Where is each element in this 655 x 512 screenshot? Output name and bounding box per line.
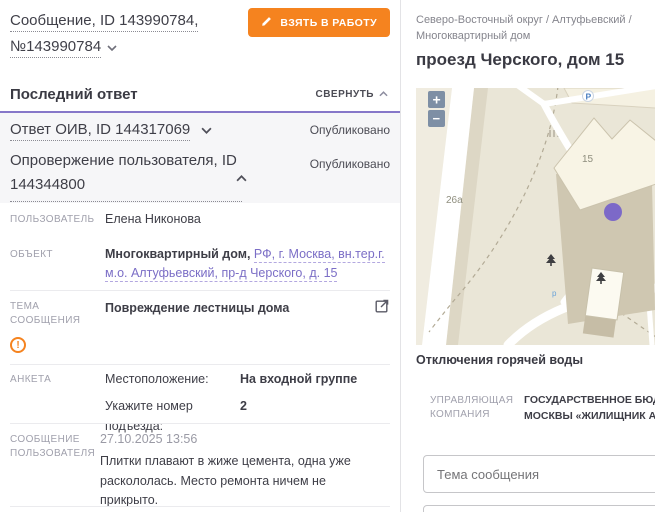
map-parking-small-icon: p [552,289,557,298]
message-title-line1[interactable]: Сообщение, ID 143990784, [10,12,198,32]
field-survey-label: АНКЕТА [10,370,105,387]
svg-text:P: P [586,91,592,101]
map-marker[interactable] [604,203,622,221]
svg-text:+: + [433,92,441,108]
status-badge: Опубликовано [310,155,390,171]
field-user-message: СООБЩЕНИЕ ПОЛЬЗОВАТЕЛЯ 27.10.2025 13:56 … [10,430,390,511]
reply-refutation-title[interactable]: Опровержение пользователя, ID 144344800 [10,149,242,202]
collapse-label: СВЕРНУТЬ [315,89,374,100]
survey-question-1: Местоположение: [105,370,240,389]
take-to-work-label: ВЗЯТЬ В РАБОТУ [280,17,377,29]
breadcrumb[interactable]: Северо-Восточный округ / Алтуфьевский / … [416,12,644,44]
divider [10,290,390,291]
field-object: ОБЪЕКТ Многоквартирный дом, РФ, г. Москв… [10,245,390,284]
message-date: 27.10.2025 13:56 [100,430,390,449]
field-user-value: Елена Никонова [105,210,390,229]
management-company-label: УПРАВЛЯЮЩАЯ КОМПАНИЯ [430,392,524,422]
message-title[interactable]: Сообщение, ID 143990784, №143990784 [10,8,198,60]
svg-text:−: − [433,111,441,126]
replies-list: Ответ ОИВ, ID 144317069 Опубликовано Опр… [0,111,400,203]
map-canvas[interactable]: 15 P p 26а [416,88,655,345]
object-panel: Северо-Восточный округ / Алтуфьевский / … [400,0,655,512]
field-object-type: Многоквартирный дом, [105,247,250,261]
chevron-down-icon[interactable] [107,34,117,60]
message-text: Плитки плавают в жиже цемента, одна уже … [100,452,364,510]
field-object-label: ОБЪЕКТ [10,245,105,262]
reply-row-oiv[interactable]: Ответ ОИВ, ID 144317069 Опубликовано [0,113,400,147]
map-zoom-out-button[interactable]: − [428,110,445,127]
field-user-label: ПОЛЬЗОВАТЕЛЬ [10,210,105,227]
last-reply-header: Последний ответ СВЕРНУТЬ [10,86,388,103]
warning-icon: ! [10,337,26,353]
management-company-value-line2: МОСКВЫ «ЖИЛИЩНИК АЛТУФ [524,408,655,424]
map-zoom-in-button[interactable]: + [428,91,445,108]
survey-answer-1: На входной группе [240,370,357,389]
divider [10,506,390,507]
address-title: проезд Черского, дом 15 [416,50,624,70]
field-topic-label: ТЕМА СООБЩЕНИЯ [10,297,105,328]
chevron-up-icon [379,89,388,100]
map-parking-icon: P [583,91,594,102]
map-building-label: 15 [582,154,594,165]
chevron-down-icon[interactable] [201,121,212,139]
field-topic: ТЕМА СООБЩЕНИЯ ! Повреждение лестницы до… [10,297,390,353]
map[interactable]: 15 P p 26а [416,88,655,345]
message-header: Сообщение, ID 143990784, №143990784 ВЗЯТ… [10,8,390,60]
management-company-value-line1: ГОСУДАРСТВЕННОЕ БЮДЖЕТН [524,392,655,408]
take-to-work-button[interactable]: ВЗЯТЬ В РАБОТУ [248,8,390,37]
chevron-up-icon[interactable] [236,169,247,187]
pencil-icon [261,15,273,30]
app-window: Сообщение, ID 143990784, №143990784 ВЗЯТ… [0,0,655,512]
message-title-line2[interactable]: №143990784 [10,38,101,58]
field-topic-value: Повреждение лестницы дома [105,297,289,318]
field-survey: АНКЕТА Местоположение: На входной группе… [10,370,390,436]
reply-row-refutation[interactable]: Опровержение пользователя, ID 144344800 … [0,147,400,203]
topic-input[interactable] [423,455,655,493]
map-plot-label: 26а [446,195,463,206]
secondary-input[interactable] [423,505,655,512]
message-panel: Сообщение, ID 143990784, №143990784 ВЗЯТ… [0,0,400,512]
field-user-message-label: СООБЩЕНИЕ ПОЛЬЗОВАТЕЛЯ [10,430,100,461]
divider [10,364,390,365]
status-badge: Опубликовано [310,121,390,137]
divider [10,423,390,424]
collapse-toggle[interactable]: СВЕРНУТЬ [315,89,388,100]
external-link-icon[interactable] [374,298,390,320]
management-company: УПРАВЛЯЮЩАЯ КОМПАНИЯ ГОСУДАРСТВЕННОЕ БЮД… [430,392,655,424]
hot-water-heading: Отключения горячей воды [416,353,583,367]
field-user: ПОЛЬЗОВАТЕЛЬ Елена Никонова [10,210,390,229]
last-reply-heading: Последний ответ [10,86,138,103]
reply-oiv-title[interactable]: Ответ ОИВ, ID 144317069 [10,121,190,141]
